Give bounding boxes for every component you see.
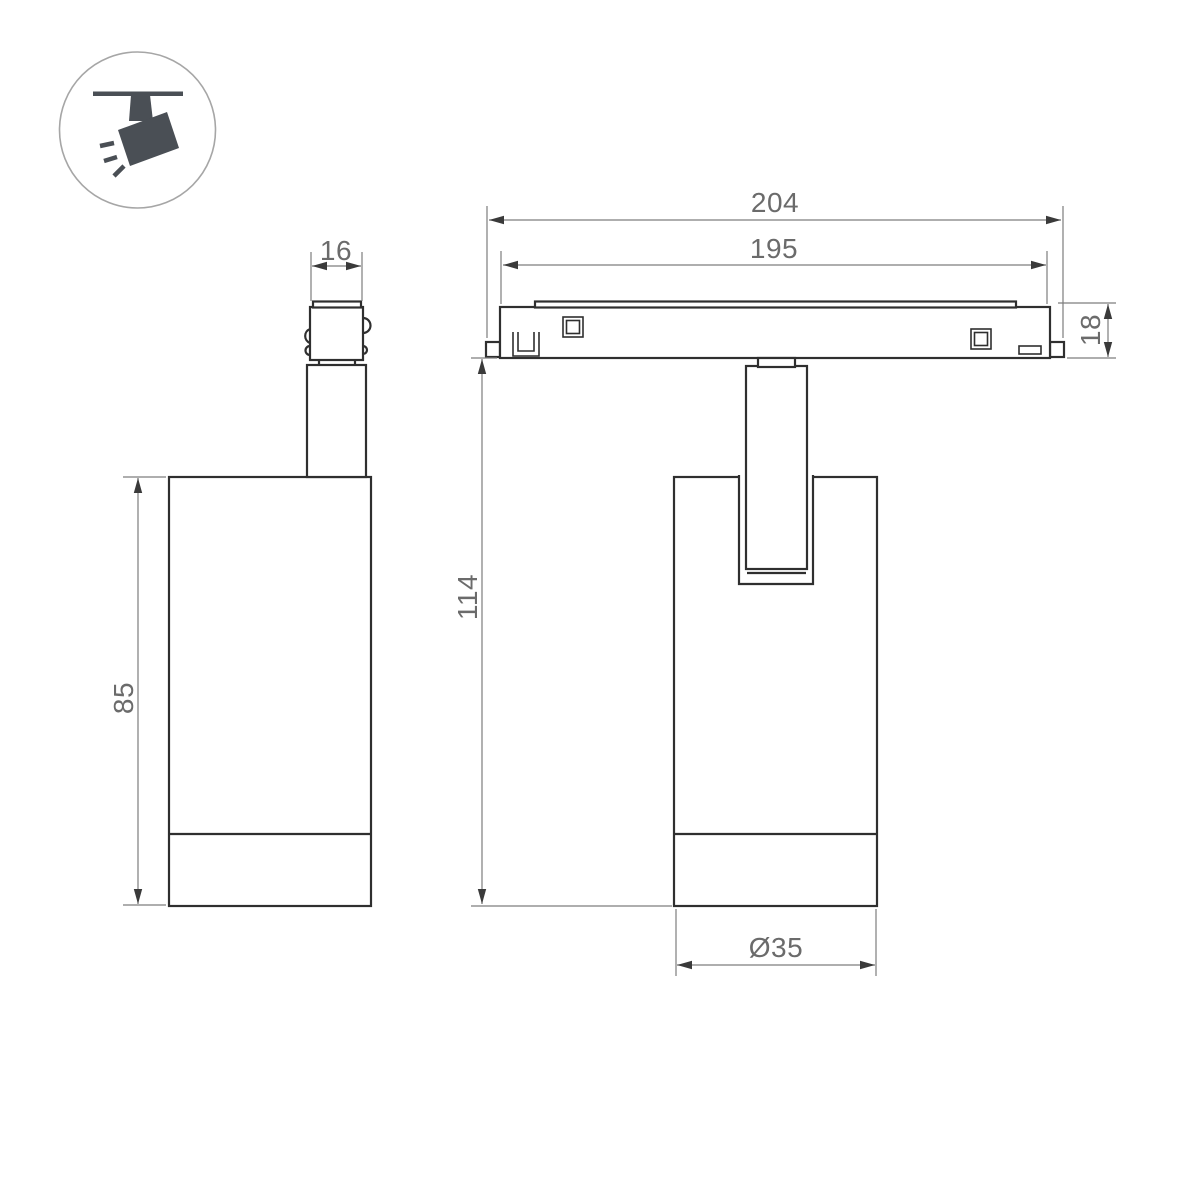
front-view — [486, 302, 1064, 907]
dim-114-label: 114 — [452, 574, 483, 620]
dim-body-diameter: Ø35 — [676, 909, 876, 976]
dim-diameter-label: Ø35 — [749, 932, 803, 963]
track-left-tab — [486, 342, 500, 357]
side-track-adapter — [310, 307, 363, 360]
side-arm — [307, 365, 366, 477]
front-arm — [746, 366, 807, 569]
dim-adapter-width: 16 — [311, 235, 362, 301]
dim-body-height: 85 — [108, 477, 166, 905]
technical-drawing-canvas: 204 195 16 18 — [0, 0, 1200, 1200]
front-track-connector — [758, 358, 795, 367]
dim-overall-height: 114 — [452, 358, 672, 906]
track-spotlight-icon — [60, 52, 216, 208]
dim-18-label: 18 — [1075, 314, 1106, 346]
dim-85-label: 85 — [108, 682, 139, 714]
dim-16-label: 16 — [320, 235, 352, 266]
side-body — [169, 477, 371, 906]
icon-mount-stem — [129, 95, 153, 121]
track-top-lip — [535, 302, 1016, 308]
dim-204-label: 204 — [751, 187, 799, 218]
dim-195-label: 195 — [750, 233, 798, 264]
track-right-tab — [1050, 342, 1064, 357]
side-adapter-lip — [313, 302, 361, 308]
drawing-page: 204 195 16 18 — [0, 0, 1200, 1200]
dim-track-height: 18 — [1058, 303, 1116, 358]
dim-track-length-inner: 195 — [501, 233, 1047, 304]
side-view — [169, 302, 371, 907]
